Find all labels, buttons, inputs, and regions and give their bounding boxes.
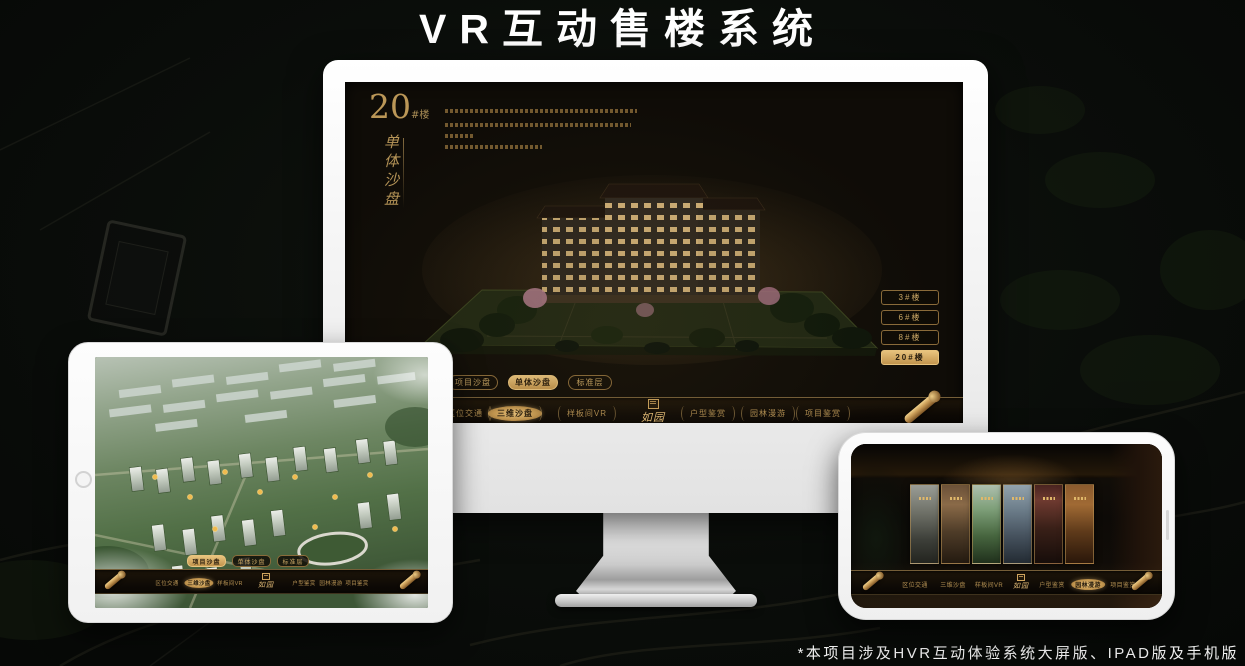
seal-icon <box>262 573 270 580</box>
scroll-icon[interactable] <box>104 572 125 591</box>
ipad-view-tabs: 项目沙盘 单体沙盘 标准层 <box>187 555 309 567</box>
brand-logo-text: 如园 <box>641 409 665 423</box>
nav-item-3d-sandbox[interactable]: 三维沙盘 <box>936 579 970 590</box>
floor-button-20[interactable]: 20#楼 <box>881 350 939 365</box>
ipad-device: 项目沙盘 单体沙盘 标准层 区位交通 三维沙盘 样板间VR 如园 户型鉴赏 园林… <box>68 342 453 623</box>
floor-button-3[interactable]: 3#楼 <box>881 290 939 305</box>
nav-item-3d-sandbox[interactable]: 三维沙盘 <box>488 406 542 421</box>
scroll-icon[interactable] <box>903 392 939 423</box>
nav-item-unit-plans[interactable]: 户型鉴赏 <box>681 406 735 421</box>
seal-icon <box>648 399 659 409</box>
panel-title-vertical: 单体沙盘 <box>381 134 402 229</box>
scroll-icon[interactable] <box>399 572 420 591</box>
building-badge: 20#楼 <box>369 90 429 124</box>
monitor-stand-base <box>555 594 757 607</box>
nav-item-unit-plans[interactable]: 户型鉴赏 <box>1035 579 1069 590</box>
nav-item-unit-plans[interactable]: 户型鉴赏 <box>289 578 318 588</box>
panorama-thumbnail-1[interactable] <box>910 484 939 564</box>
phone-speaker-slot <box>1166 510 1169 540</box>
tab-standard-floor[interactable]: 标准层 <box>568 375 612 390</box>
tab-single-sandbox[interactable]: 单体沙盘 <box>232 555 271 567</box>
phone-device: 区位交通 三维沙盘 样板间VR 如园 户型鉴赏 园林漫游 项目鉴赏 <box>838 432 1175 620</box>
phone-screen: 区位交通 三维沙盘 样板间VR 如园 户型鉴赏 园林漫游 项目鉴赏 <box>851 444 1162 608</box>
building-number-suffix: #楼 <box>411 110 429 121</box>
nav-item-garden-tour[interactable]: 园林漫游 <box>316 578 345 588</box>
panorama-thumbnail-5[interactable] <box>1034 484 1063 564</box>
ipad-screen: 项目沙盘 单体沙盘 标准层 区位交通 三维沙盘 样板间VR 如园 户型鉴赏 园林… <box>95 357 428 608</box>
brand-logo-text: 如园 <box>258 580 274 590</box>
floor-button-6[interactable]: 6#楼 <box>881 310 939 325</box>
nav-item-location[interactable]: 区位交通 <box>152 578 181 588</box>
brand-logo: 如园 <box>641 399 665 423</box>
nav-item-project-gallery[interactable]: 项目鉴赏 <box>342 578 371 588</box>
nav-item-location[interactable]: 区位交通 <box>898 579 932 590</box>
nav-item-project-gallery[interactable]: 项目鉴赏 <box>796 406 850 421</box>
intro-text-line <box>445 134 473 138</box>
nav-item-showroom-vr[interactable]: 样板间VR <box>214 578 246 588</box>
nav-item-3d-sandbox[interactable]: 三维沙盘 <box>184 578 213 588</box>
footnote: *本项目涉及HVR互动体验系统大屏版、IPAD版及手机版 <box>798 642 1239 663</box>
nav-item-garden-tour[interactable]: 园林漫游 <box>1071 579 1105 590</box>
brand-logo: 如园 <box>1013 574 1029 591</box>
building-3d-render <box>407 140 907 375</box>
floor-button-8[interactable]: 8#楼 <box>881 330 939 345</box>
scroll-icon[interactable] <box>862 573 883 592</box>
brand-logo: 如园 <box>258 573 274 590</box>
poster-stage: VR互动售楼系统 20#楼 单体沙盘 <box>0 0 1245 666</box>
panorama-thumbnail-4[interactable] <box>1003 484 1032 564</box>
ipad-bottom-nav: 区位交通 三维沙盘 样板间VR 如园 户型鉴赏 园林漫游 项目鉴赏 <box>95 569 428 594</box>
page-title: VR互动售楼系统 <box>0 4 1245 54</box>
floor-button-group: 3#楼 6#楼 8#楼 20#楼 <box>881 290 939 370</box>
tab-single-sandbox[interactable]: 单体沙盘 <box>508 375 558 390</box>
tab-project-sandbox[interactable]: 项目沙盘 <box>187 555 226 567</box>
seal-icon <box>1017 574 1025 581</box>
panorama-thumbnail-6[interactable] <box>1065 484 1094 564</box>
brand-logo-text: 如园 <box>1013 581 1029 591</box>
monitor-stand-neck <box>576 511 736 597</box>
view-tabs: 项目沙盘 单体沙盘 标准层 <box>448 375 612 390</box>
tab-project-sandbox[interactable]: 项目沙盘 <box>448 375 498 390</box>
nav-item-showroom-vr[interactable]: 样板间VR <box>558 406 616 421</box>
phone-bottom-nav: 区位交通 三维沙盘 样板间VR 如园 户型鉴赏 园林漫游 项目鉴赏 <box>851 570 1162 595</box>
nav-item-showroom-vr[interactable]: 样板间VR <box>971 579 1007 590</box>
panorama-thumbnail-2[interactable] <box>941 484 970 564</box>
nav-item-garden-tour[interactable]: 园林漫游 <box>741 406 795 421</box>
panel-title-rule <box>403 138 404 208</box>
panorama-thumbnail-3[interactable] <box>972 484 1001 564</box>
home-button[interactable] <box>75 471 92 488</box>
intro-text-line <box>445 123 631 127</box>
building-number: 20 <box>369 87 411 126</box>
tab-standard-floor[interactable]: 标准层 <box>277 555 309 567</box>
intro-text-line <box>445 109 637 113</box>
